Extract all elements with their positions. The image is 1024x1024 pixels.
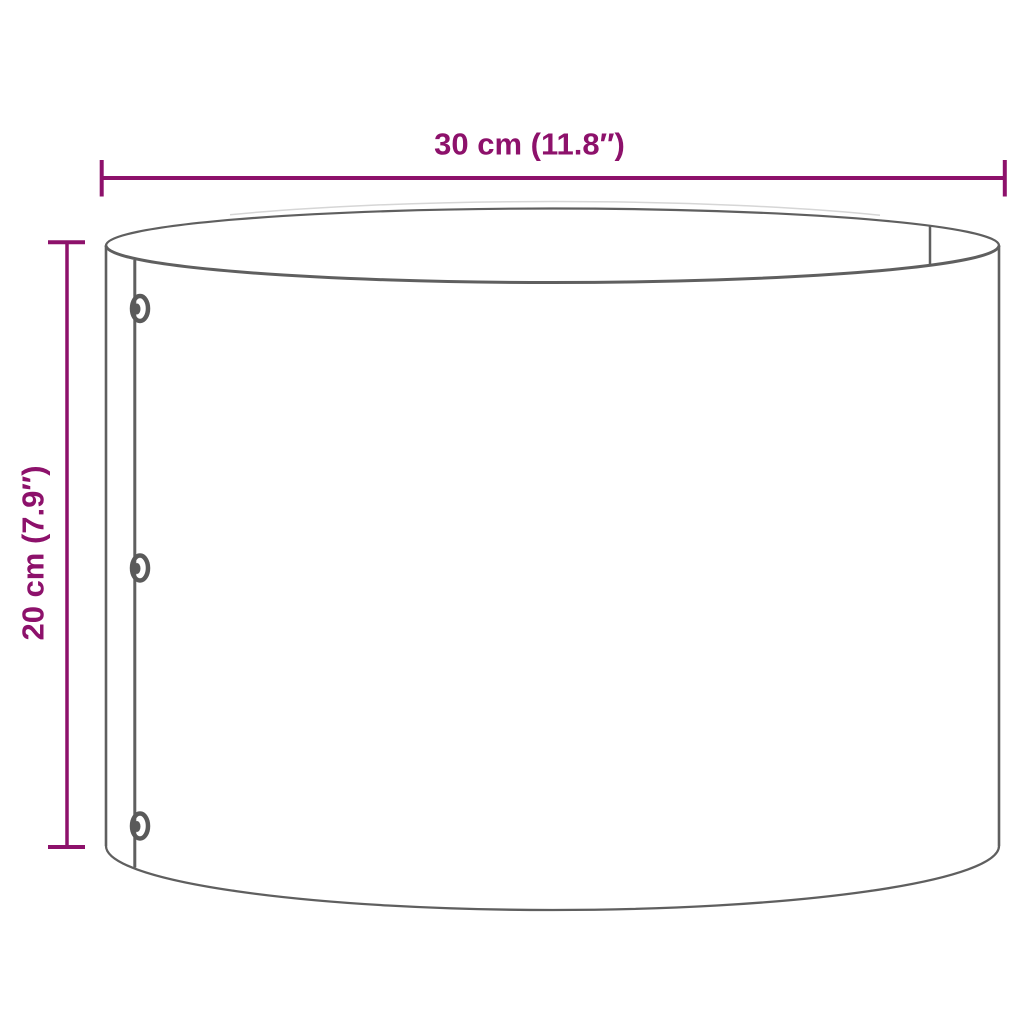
svg-text:30 cm (11.8″): 30 cm (11.8″) bbox=[434, 126, 625, 161]
svg-text:20 cm (7.9″): 20 cm (7.9″) bbox=[16, 465, 51, 640]
